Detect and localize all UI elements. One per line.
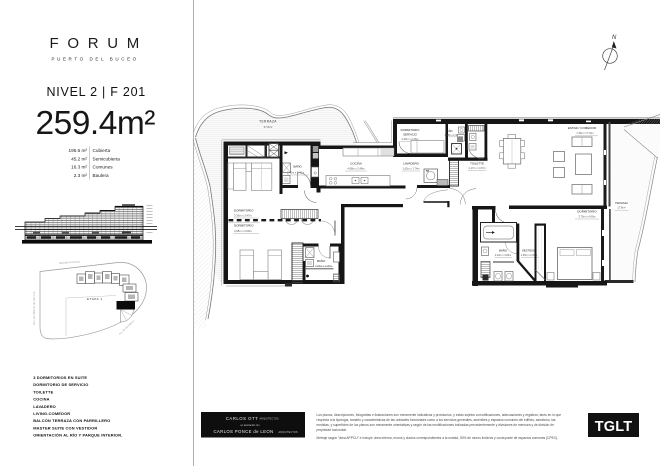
svg-text:TOILETTE: TOILETTE [33, 389, 53, 394]
svg-text:Los planos, descripciones, fot: Los planos, descripciones, fotografías e… [317, 413, 562, 417]
svg-text:1.17m x 1.67m: 1.17m x 1.67m [468, 166, 485, 170]
svg-text:TERRAZA: TERRAZA [259, 120, 277, 124]
svg-text:ETAPA 1: ETAPA 1 [87, 297, 103, 301]
svg-text:en asociación con: en asociación con [240, 424, 260, 427]
svg-text:3.70m x 4.60m: 3.70m x 4.60m [578, 215, 595, 219]
svg-text:2.20m x 2.20m: 2.20m x 2.20m [315, 264, 332, 268]
svg-text:7.36m x 5.74m: 7.36m x 5.74m [576, 131, 593, 135]
svg-text:Semicubierta: Semicubierta [93, 156, 121, 161]
svg-text:LAVADERO: LAVADERO [403, 162, 420, 166]
svg-text:16.3 m²: 16.3 m² [71, 165, 87, 170]
svg-text:2.3 m²: 2.3 m² [74, 173, 88, 178]
svg-text:259.4m²: 259.4m² [36, 105, 156, 142]
svg-text:ESTAR / COMEDOR: ESTAR / COMEDOR [568, 126, 597, 130]
svg-text:Cubierta: Cubierta [93, 148, 111, 153]
svg-text:FORUM: FORUM [50, 35, 149, 52]
svg-text:3.46m x 2.46m: 3.46m x 2.46m [401, 137, 418, 141]
svg-text:3 DORMITORIOS EN SUITE: 3 DORMITORIOS EN SUITE [33, 375, 87, 380]
svg-text:BAÑO: BAÑO [499, 248, 508, 253]
svg-text:NIVEL 2 | F 201: NIVEL 2 | F 201 [47, 85, 147, 99]
svg-text:TGLT: TGLT [595, 419, 633, 435]
svg-text:DORMITORIO: DORMITORIO [234, 209, 254, 213]
svg-text:propiedad horizontal.: propiedad horizontal. [317, 428, 347, 432]
svg-text:2.20m x 3.80m: 2.20m x 3.80m [495, 254, 512, 257]
svg-text:TERRAZA: TERRAZA [615, 201, 628, 205]
svg-text:1.62m x 1.74m: 1.62m x 1.74m [402, 167, 419, 171]
svg-text:Comunes: Comunes [93, 165, 114, 170]
svg-text:ARQUITECTOS: ARQUITECTOS [260, 418, 280, 421]
svg-text:Av. Luis Alberto de Herrera: Av. Luis Alberto de Herrera [32, 291, 36, 325]
svg-text:BAÑO: BAÑO [446, 130, 453, 133]
svg-text:LIVING-COMEDOR: LIVING-COMEDOR [33, 411, 70, 416]
svg-text:17.8m²: 17.8m² [617, 206, 625, 210]
svg-text:N: N [612, 35, 617, 41]
svg-text:BAÑO: BAÑO [294, 164, 303, 169]
svg-text:BALCÓN TERRAZA CON PARRILLERO: BALCÓN TERRAZA CON PARRILLERO [33, 418, 110, 423]
svg-text:Baulera: Baulera [93, 173, 110, 178]
svg-text:respecta a la tipología, tamañ: respecta a la tipología, tamaño y caract… [317, 418, 556, 422]
svg-text:medidas, y superficies de los: medidas, y superficies de los planos son… [317, 423, 555, 427]
svg-text:DORMITORIO DE SERVICIO: DORMITORIO DE SERVICIO [33, 382, 88, 387]
svg-text:4.08m x 3.09m: 4.08m x 3.09m [234, 229, 253, 233]
svg-text:COCINA: COCINA [350, 162, 362, 166]
svg-text:4.68m x 2.48m: 4.68m x 2.48m [347, 167, 364, 171]
svg-text:CARLOS PONCE de LEON: CARLOS PONCE de LEON [213, 429, 273, 434]
svg-text:VESTIDOR: VESTIDOR [522, 249, 536, 253]
svg-text:Metraje según "área APPCU" e i: Metraje según "área APPCU" e incluye: ár… [317, 436, 559, 440]
svg-text:BAÑO: BAÑO [317, 258, 326, 263]
svg-text:CARLOS OTT: CARLOS OTT [226, 416, 258, 421]
svg-text:3.30m x 3.47m: 3.30m x 3.47m [234, 214, 253, 218]
svg-text:MASTER SUITE CON VESTIDOR: MASTER SUITE CON VESTIDOR [33, 425, 97, 430]
svg-text:DORMITORIO: DORMITORIO [401, 128, 420, 132]
svg-text:DORMITORIO: DORMITORIO [577, 210, 597, 214]
svg-text:SERVICIO: SERVICIO [403, 133, 418, 137]
svg-text:195.6 m²: 195.6 m² [69, 148, 88, 153]
svg-text:27.8m²: 27.8m² [264, 125, 273, 129]
svg-text:2.40m x 2.46m: 2.40m x 2.46m [287, 171, 304, 175]
svg-text:ORIENTACIÓN AL RÍO Y PARQUE IN: ORIENTACIÓN AL RÍO Y PARQUE INTERIOR. [33, 433, 122, 438]
svg-text:45.2 m²: 45.2 m² [71, 156, 87, 161]
svg-text:DORMITORIO: DORMITORIO [234, 224, 254, 228]
svg-text:ARQUITECTOS: ARQUITECTOS [279, 431, 299, 434]
svg-text:COCINA: COCINA [33, 397, 49, 402]
svg-text:PUERTO DEL BUCEO: PUERTO DEL BUCEO [52, 57, 139, 62]
svg-text:LAVADERO: LAVADERO [33, 404, 56, 409]
svg-text:TOILETTE: TOILETTE [470, 162, 484, 166]
